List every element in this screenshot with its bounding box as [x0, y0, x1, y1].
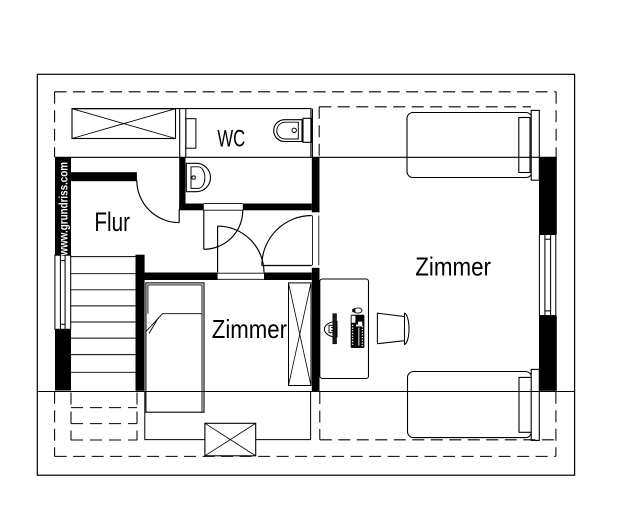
svg-text:WC: WC: [217, 126, 245, 153]
svg-text:Zimmer: Zimmer: [212, 314, 287, 344]
svg-text:Zimmer: Zimmer: [415, 252, 491, 282]
svg-text:Flur: Flur: [94, 207, 130, 237]
svg-text:www.grundriss.com: www.grundriss.com: [56, 162, 70, 256]
